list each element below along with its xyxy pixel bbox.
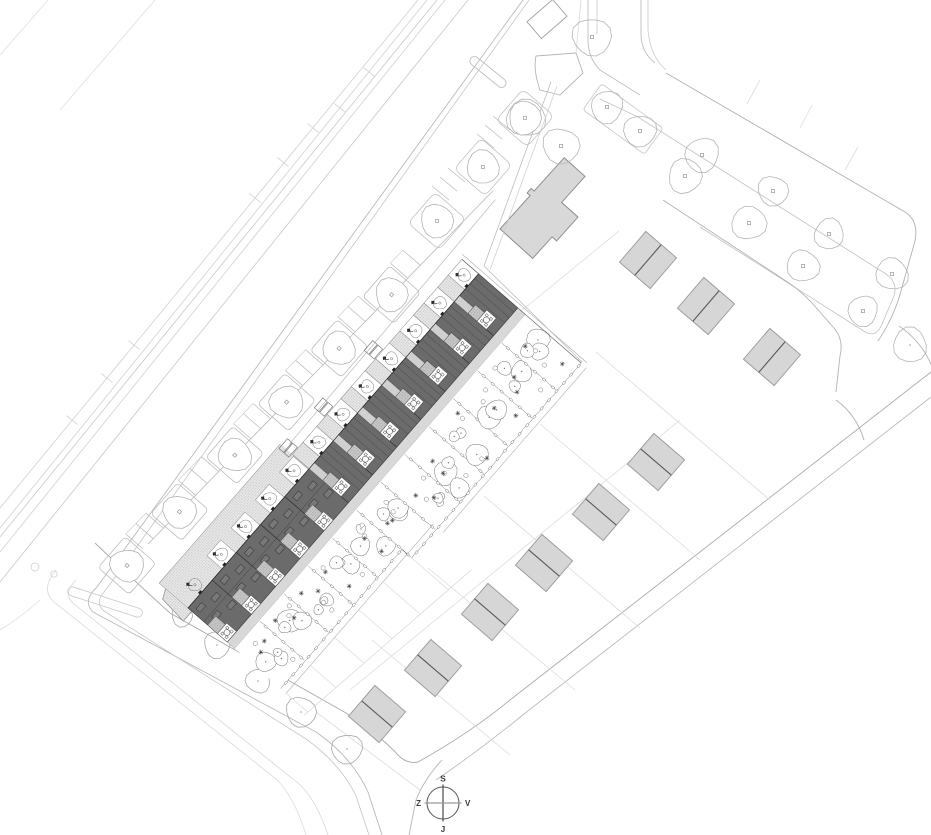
svg-text:V: V (465, 799, 471, 808)
svg-text:J: J (441, 825, 445, 834)
svg-text:Z: Z (416, 799, 421, 808)
svg-text:S: S (440, 774, 446, 784)
